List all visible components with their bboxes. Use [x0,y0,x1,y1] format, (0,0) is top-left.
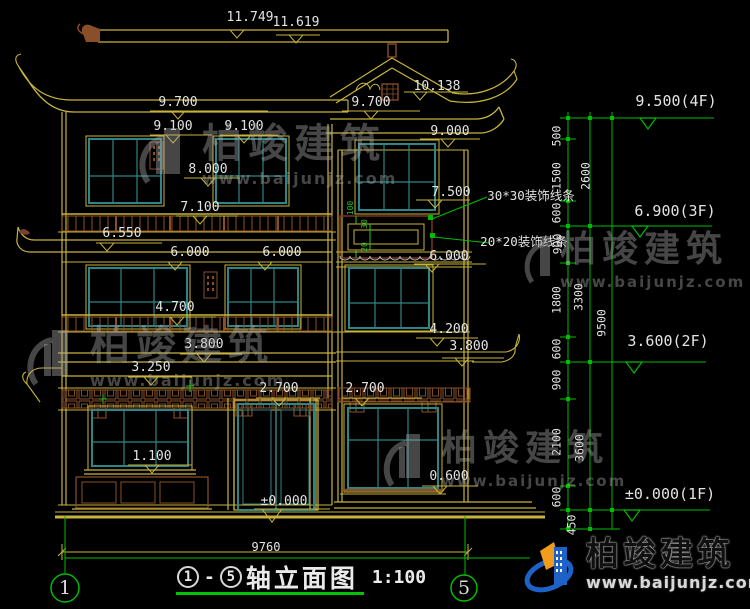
title-underline [176,592,364,595]
leader-lines [432,197,489,243]
ridge-ornament-icon [82,25,100,42]
window-2f-wing [345,265,433,331]
entrance-door [230,400,322,512]
window-3f-wing [355,140,439,214]
balcony-railing-2f [58,315,336,332]
parapet-1f [72,477,212,509]
brand-logo-icon [524,537,578,599]
cad-elevation-drawing: 11.74911.61910.1389.7009.7009.1009.1009.… [0,0,750,609]
wing-parapet-panel [336,216,472,267]
title-axis-end: 5 [220,566,242,588]
main-roof [16,24,448,112]
drawing-title: 1 - 5 轴立面图 1:100 [177,559,426,595]
title-text: 轴立面图 [246,559,358,595]
window-1f-wing [340,404,446,494]
window-3f-right [213,136,289,206]
eave-bird-ornament-icon [19,229,30,235]
elevation-linework [0,0,750,609]
wing-gable-roof [326,44,517,150]
title-dash: - [204,567,215,588]
gable-ornament-icon [382,84,398,100]
base-platform [334,502,536,508]
left-eave-return [23,368,62,402]
title-axis-start: 1 [177,566,199,588]
gable-finial-icon [388,44,396,57]
window-1f-left [84,406,196,474]
window-3f-left [86,136,164,206]
brand-name: 柏竣建筑 [586,537,750,570]
walls [62,112,468,505]
axis-bubble-1: 1 [59,577,71,599]
balcony-railing-3f [58,214,336,240]
brand-logo: 柏竣建筑 www.baijunjz.com [524,537,750,599]
level-flags [624,118,656,521]
axis-bubble-5: 5 [458,577,470,599]
brand-url: www.baijunjz.com [586,573,750,592]
pier-ornament-2f [204,272,217,298]
title-scale: 1:100 [372,567,426,588]
dimension-triangles [100,30,469,522]
porch-posts [92,398,436,510]
chain-node-ticks [428,116,614,531]
